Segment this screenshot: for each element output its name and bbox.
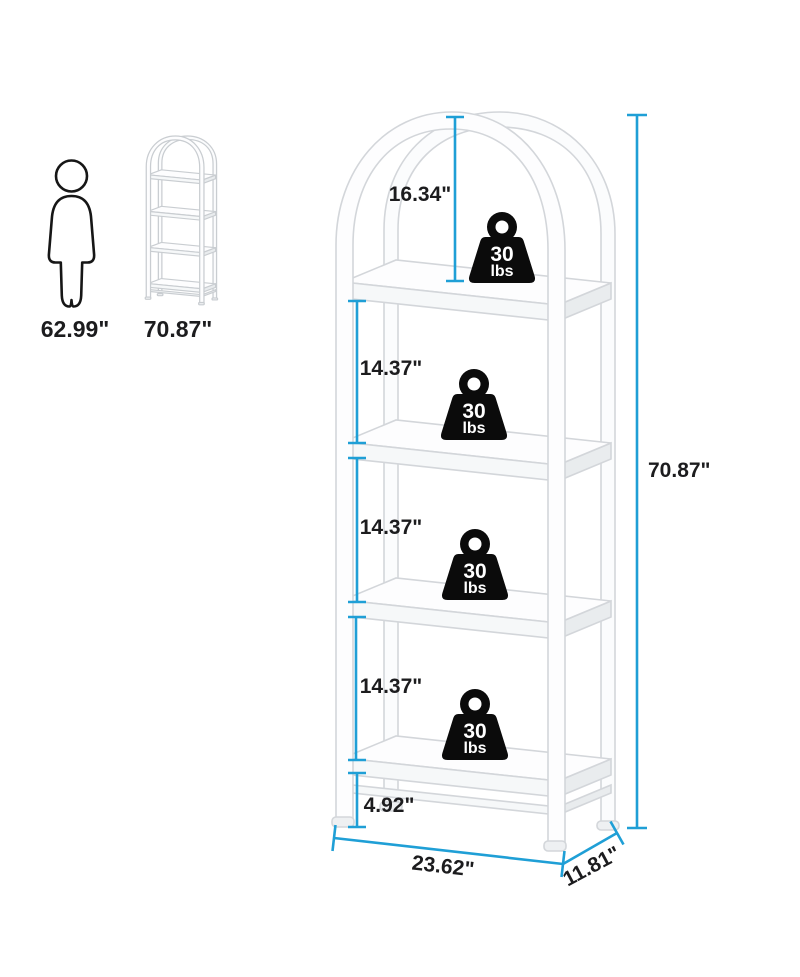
- dim-label-shelf-spacing-lower: 14.37": [360, 676, 423, 698]
- product-dimension-diagram: 62.99" 70.87" 16.34" 14.37" 14.37" 14.37…: [0, 0, 800, 977]
- weight-capacity-value: 30: [463, 721, 486, 742]
- weight-capacity-unit: lbs: [463, 741, 486, 757]
- weight-capacity-value: 30: [462, 401, 485, 422]
- weight-capacity-unit: lbs: [462, 421, 485, 437]
- dim-label-arch-to-top-shelf: 16.34": [389, 184, 452, 206]
- dim-line-overall-height: [627, 115, 647, 828]
- dimension-diagram-art: [0, 0, 800, 977]
- dim-label-shelf-spacing-upper: 14.37": [360, 358, 423, 380]
- weight-capacity-unit: lbs: [463, 581, 486, 597]
- dim-label-overall-height: 70.87": [648, 460, 711, 482]
- thumbnail-height-label: 70.87": [144, 317, 212, 341]
- dim-label-shelf-spacing-middle: 14.37": [360, 517, 423, 539]
- weight-capacity-unit: lbs: [490, 264, 513, 280]
- bookshelf-thumbnail: [145, 136, 217, 305]
- person-silhouette-icon: [49, 161, 94, 307]
- dim-label-bottom-clearance: 4.92": [364, 795, 415, 817]
- weight-capacity-value: 30: [463, 561, 486, 582]
- weight-capacity-value: 30: [490, 244, 513, 265]
- person-height-label: 62.99": [41, 317, 109, 341]
